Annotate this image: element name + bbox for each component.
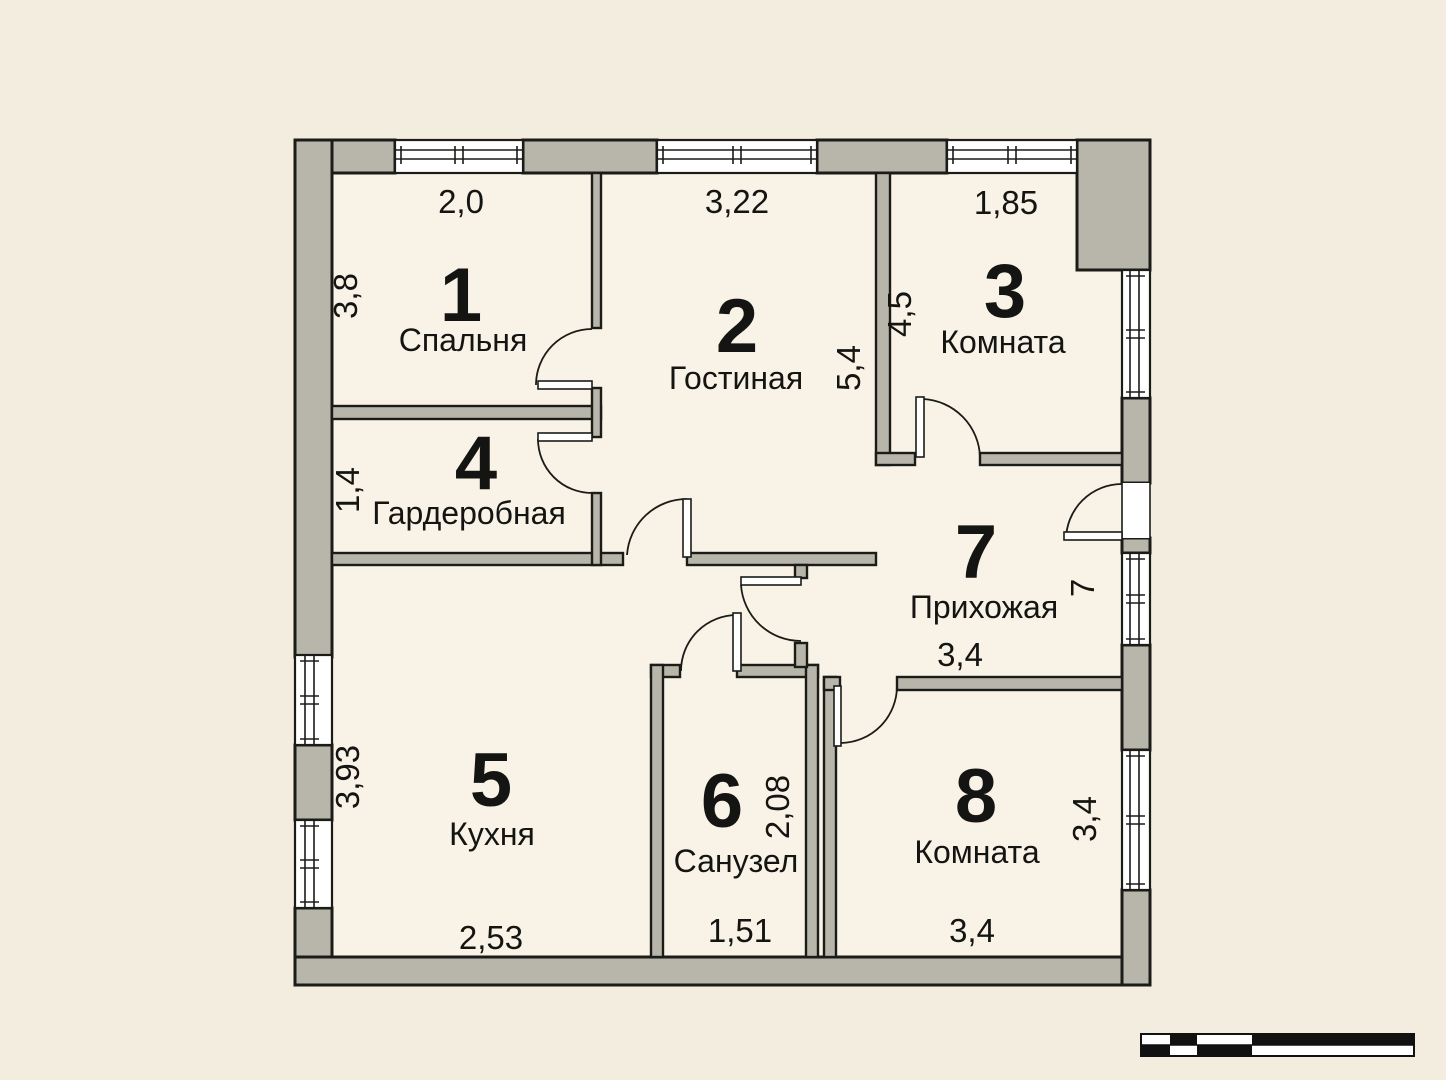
room-5-number: 5 xyxy=(470,738,512,823)
room-7-number: 7 xyxy=(955,510,997,595)
wall-room1-right xyxy=(592,173,601,328)
room-8-number: 8 xyxy=(955,754,997,839)
room-3-number: 3 xyxy=(984,249,1026,334)
room-7-name: Прихожая xyxy=(910,589,1058,625)
window-kitchen-lower xyxy=(295,820,332,908)
wall-room2-bottom xyxy=(687,553,876,565)
room-4-dim-side: 1,4 xyxy=(329,467,366,513)
room-3-name: Комната xyxy=(940,324,1066,360)
wall-segment xyxy=(295,745,332,820)
wall-bath-right xyxy=(806,665,818,957)
room-2-dim-side: 5,4 xyxy=(830,345,867,391)
window-room8 xyxy=(1122,750,1150,890)
window-room3-right xyxy=(1122,270,1150,398)
wall-segment xyxy=(295,140,332,657)
room-8-dim-side: 3,4 xyxy=(1066,796,1103,842)
room-5-dim-side: 3,93 xyxy=(329,745,366,809)
room-2-number: 2 xyxy=(716,284,758,369)
room-8-dim-bottom: 3,4 xyxy=(949,912,995,949)
scale-bar-segment xyxy=(1197,1045,1252,1056)
window-room3-top xyxy=(947,140,1077,173)
room-6-name: Санузел xyxy=(674,843,799,879)
room-4-number: 4 xyxy=(455,421,497,506)
room-1-dim-top: 2,0 xyxy=(438,183,484,220)
window-room2 xyxy=(657,140,817,173)
wall-segment xyxy=(592,388,601,437)
window-room1 xyxy=(395,140,523,173)
wall-segment xyxy=(1122,398,1150,483)
wall-segment xyxy=(523,140,657,173)
scale-bar xyxy=(1141,1034,1414,1056)
wall-segment xyxy=(817,140,947,173)
wall-room8-top xyxy=(897,677,1122,690)
wall-segment xyxy=(295,957,1150,985)
wall-hall-top xyxy=(876,453,915,465)
wall-kitchen-top xyxy=(332,553,623,565)
scale-bar-segment xyxy=(1170,1034,1197,1045)
room-6-number: 6 xyxy=(701,759,743,844)
room-1-dim-side: 3,8 xyxy=(327,273,364,319)
room-3-dim-side: 4,5 xyxy=(881,291,918,337)
window-kitchen-upper xyxy=(295,655,332,745)
room-8-name: Комната xyxy=(914,834,1040,870)
room-5-dim-bottom: 2,53 xyxy=(459,919,523,956)
wall-segment xyxy=(1122,538,1150,553)
wall-room4-right xyxy=(592,493,601,565)
room-3-dim-top: 1,85 xyxy=(974,184,1038,221)
floor-plan-svg: 1 Спальня 2,0 3,8 2 Гостиная 3,22 5,4 3 … xyxy=(0,0,1446,1080)
wall-segment xyxy=(1122,645,1150,750)
room-7-dim-bottom: 3,4 xyxy=(937,636,983,673)
scale-bar-segment xyxy=(1141,1045,1170,1056)
wall-stub xyxy=(795,643,807,667)
room-6-dim-side: 2,08 xyxy=(759,775,796,839)
wall-room1-room4 xyxy=(332,406,601,419)
room-6-dim-bottom: 1,51 xyxy=(708,912,772,949)
wall-room3-bottom xyxy=(980,453,1122,465)
room-7-dim-side: 7 xyxy=(1064,579,1101,597)
room-5-name: Кухня xyxy=(449,816,535,852)
wall-corner xyxy=(1077,140,1150,270)
room-4-name: Гардеробная xyxy=(372,495,566,531)
wall-stub xyxy=(795,565,807,578)
wall-bath-left xyxy=(651,665,663,957)
room-1-name: Спальня xyxy=(399,322,528,358)
window-hallway xyxy=(1122,553,1150,645)
balcony-door-opening xyxy=(1122,483,1150,538)
scale-bar-segment xyxy=(1252,1034,1414,1045)
wall-segment xyxy=(1122,890,1150,985)
room-2-name: Гостиная xyxy=(669,360,803,396)
room-2-dim-top: 3,22 xyxy=(705,183,769,220)
